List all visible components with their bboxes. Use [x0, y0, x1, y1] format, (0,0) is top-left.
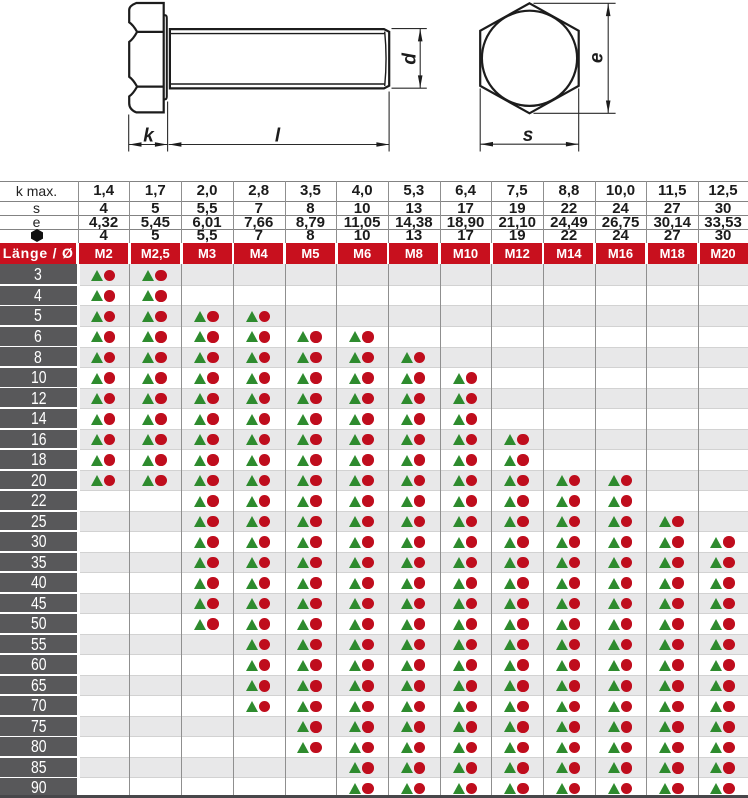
svg-text:s: s	[523, 125, 534, 146]
svg-text:k: k	[143, 126, 155, 147]
svg-text:d: d	[400, 53, 421, 65]
svg-text:l: l	[275, 126, 281, 147]
svg-text:e: e	[587, 52, 608, 63]
